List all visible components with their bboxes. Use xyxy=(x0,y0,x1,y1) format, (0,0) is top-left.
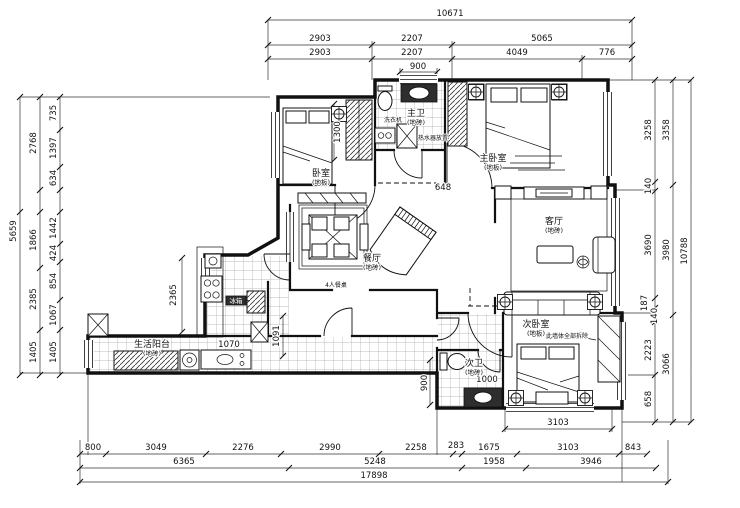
dimension-label: 10788 xyxy=(680,237,690,264)
dimension-label: 1000 xyxy=(476,375,498,385)
washer-icon xyxy=(180,350,199,370)
dimension-label: 5065 xyxy=(531,34,553,44)
dimension-label: 2258 xyxy=(405,443,427,453)
washing-machine-icon xyxy=(397,124,417,148)
dimension-label: 1405 xyxy=(49,341,59,363)
shaft-icon xyxy=(88,314,108,336)
room-name-label: 次卧室 xyxy=(522,318,549,330)
room-name-label: 主卫 xyxy=(407,107,425,119)
dimension-label: 3358 xyxy=(662,119,672,141)
dimension-label: 1300 xyxy=(333,121,343,143)
dimension-label: 648 xyxy=(435,183,451,193)
room-label-master-bath: 主卫(地砖) xyxy=(407,107,425,127)
dimension-label: 3103 xyxy=(557,443,579,453)
dimension-label: 5248 xyxy=(364,457,386,467)
dimension-label: 1866 xyxy=(29,229,39,251)
ceiling-lamp-icon xyxy=(509,391,524,406)
room-label-master-bedroom: 主卧室(地板) xyxy=(479,152,506,172)
balcony-counter-icon xyxy=(201,350,251,369)
sofa-icon xyxy=(504,292,600,315)
dimension-label: 2276 xyxy=(232,443,254,453)
dimension-label: 1091 xyxy=(272,325,282,347)
coffee-table-icon xyxy=(537,246,573,263)
room-label-second-bath: 次卫(地砖) xyxy=(465,357,483,377)
sideboard-icon xyxy=(298,193,366,203)
wardrobe-icon xyxy=(598,316,620,382)
room-name-label: 生活阳台 xyxy=(134,338,170,350)
dimension-label: 3980 xyxy=(662,239,672,261)
room-label-living-room: 客厅(地砖) xyxy=(545,215,563,235)
dimension-label: 283 xyxy=(448,441,464,451)
bath-cabinet-icon xyxy=(375,128,395,143)
room-label-dining-room: 餐厅(地砖) xyxy=(363,252,381,272)
dimension-label: 2903 xyxy=(309,34,331,44)
dimension-label: 4049 xyxy=(506,48,528,58)
dimension-label: 1442 xyxy=(49,217,59,239)
ceiling-lamp-icon xyxy=(588,295,603,310)
dimension-label: 5659 xyxy=(9,220,19,242)
dimension-label: 658 xyxy=(644,391,654,407)
dimension-label: 2207 xyxy=(401,48,423,58)
dimension-label: 1397 xyxy=(49,137,59,159)
dimension-label: 3946 xyxy=(580,457,602,467)
dimension-label: 2903 xyxy=(309,48,331,58)
room-name-label: 次卫 xyxy=(465,357,483,369)
floorplan-canvas: 1067129032207506529032207404977690056592… xyxy=(0,0,740,508)
dimension-label: 3258 xyxy=(644,119,654,141)
annotation-label: 洗衣机 xyxy=(384,116,402,124)
ceiling-lamp-icon xyxy=(578,391,593,406)
dimension-label: 2207 xyxy=(401,34,423,44)
dimension-label: 10671 xyxy=(436,9,463,19)
toilet-icon xyxy=(440,353,466,370)
ceiling-lamp-icon xyxy=(498,295,513,310)
dimension-label: 900 xyxy=(410,62,426,72)
dimension-label: 2365 xyxy=(169,284,179,306)
dimension-label: 424 xyxy=(49,245,59,261)
tv-cabinet-icon xyxy=(524,187,584,199)
dimension-label: 2223 xyxy=(644,339,654,361)
room-name-label: 主卧室 xyxy=(479,152,506,164)
dimension-label: 843 xyxy=(625,443,641,453)
dimension-label: 3049 xyxy=(145,443,167,453)
dimension-label: 776 xyxy=(599,48,615,58)
dining-table-icon xyxy=(299,205,368,269)
ceiling-lamp-icon xyxy=(552,85,567,100)
armchair-icon xyxy=(593,237,615,273)
dimension-label: 1070 xyxy=(218,340,240,350)
wardrobe-icon xyxy=(346,100,372,160)
dimension-label: 854 xyxy=(49,273,59,289)
sink-icon xyxy=(401,84,437,102)
dimension-label: 17898 xyxy=(360,471,387,481)
bed-icon xyxy=(517,344,579,404)
dimension-label: 1958 xyxy=(483,457,505,467)
dimension-label: 900 xyxy=(420,375,430,391)
dimension-label: 3103 xyxy=(547,418,569,428)
room-name-label: 餐厅 xyxy=(363,252,381,264)
dimension-label: 1675 xyxy=(478,443,500,453)
dimension-label: 800 xyxy=(85,443,101,453)
ceiling-lamp-icon xyxy=(469,85,484,100)
room-floor-label: (地砖) xyxy=(545,226,563,235)
room-floor-label: (地板) xyxy=(527,329,545,338)
dimension-label: 1405 xyxy=(29,341,39,363)
toilet-icon xyxy=(378,86,392,111)
annotation-label: 冰箱 xyxy=(230,296,244,305)
room-label-bedroom-2: 卧室(地板) xyxy=(312,167,330,187)
column-icon xyxy=(591,186,607,199)
dimension-label: 1067 xyxy=(49,304,59,326)
dimension-label: 735 xyxy=(49,105,59,121)
dimension-label: 2990 xyxy=(319,443,341,453)
column-icon xyxy=(495,186,511,199)
dimension-label: 634 xyxy=(49,170,59,186)
room-floor-label: (地板) xyxy=(312,178,330,187)
room-name-label: 客厅 xyxy=(545,215,563,227)
annotation-label: 热水器放置 xyxy=(418,134,448,142)
ceiling-lamp-icon xyxy=(332,107,347,122)
dimension-label: 3066 xyxy=(662,353,672,375)
sink-icon xyxy=(464,388,502,407)
plant-icon xyxy=(577,256,589,268)
annotation-label: 4人餐桌 xyxy=(325,281,347,289)
master-wardrobe-icon xyxy=(448,82,467,146)
dimension-label: 140 xyxy=(650,308,660,324)
room-floor-label: (地板) xyxy=(484,163,502,172)
annotation-label: 此墙体全部拆除 xyxy=(546,332,588,340)
room-floor-label: (地砖) xyxy=(143,349,161,358)
dimension-label: 6365 xyxy=(173,457,195,467)
duct-column-icon xyxy=(251,322,268,342)
room-name-label: 卧室 xyxy=(312,167,330,179)
dimension-label: 140 xyxy=(644,178,654,194)
dimension-label: 2768 xyxy=(29,132,39,154)
dimension-label: 187 xyxy=(640,295,650,311)
dimension-label: 3690 xyxy=(644,234,654,256)
room-floor-label: (地砖) xyxy=(363,263,381,272)
room-floor-label: (地砖) xyxy=(407,118,425,127)
room-floor-label: (地砖) xyxy=(465,368,483,377)
dimension-label: 2385 xyxy=(29,288,39,310)
